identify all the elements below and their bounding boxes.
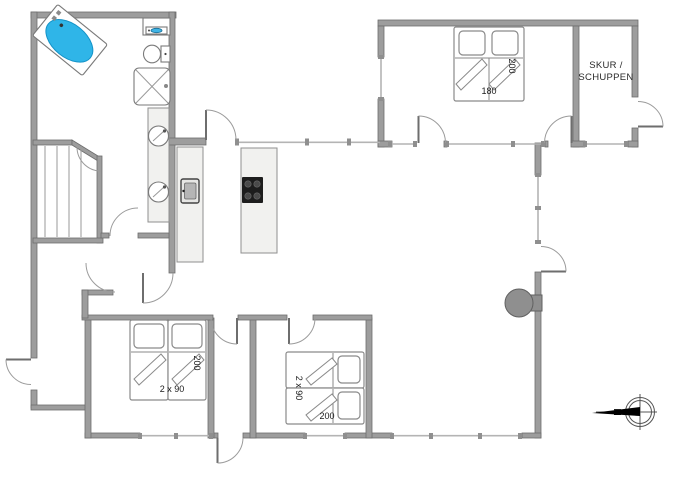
toilet-icon [144,45,171,63]
beds-label-left: 2 x 90 [160,384,185,394]
double-washbasin-icon [148,108,169,222]
bedroom-middle-door [289,318,315,344]
shower-icon [134,68,170,105]
passage-door [211,318,237,344]
bedroom-top-door-right [545,116,572,143]
staircase-icon [45,146,81,237]
labels: 180 200 2 x 90 200 2 x 90 200 SKUR / SCH… [160,58,634,421]
bed-width-label-top: 180 [481,86,496,96]
compass-north-label: N [613,408,624,415]
bathroom-door [110,208,138,236]
oven-icon [181,179,199,203]
bed-length-label-middle: 200 [319,411,334,421]
east-door [541,247,566,272]
south-door [218,438,244,463]
entrance-door [206,110,236,140]
compass-icon: N [592,394,657,430]
shed-label-line2: SCHUPPEN [578,72,633,83]
beds-label-middle: 2 x 90 [294,376,304,401]
washing-machine-icon [143,18,170,35]
kitchen-counter [177,147,203,262]
floor-plan: 180 200 2 x 90 200 2 x 90 200 SKUR / SCH… [0,0,677,479]
hall-door-east [143,273,173,303]
cooktop-icon [242,177,263,203]
bedroom-top-door-left [419,116,446,143]
kitchen [177,147,277,262]
west-door [6,360,31,385]
shed-label-line1: SKUR / [589,60,623,71]
shed-door [638,102,663,127]
hall-door-west [86,263,115,292]
bed-length-label-left: 200 [192,355,202,370]
bed-length-label-top: 200 [507,58,517,73]
